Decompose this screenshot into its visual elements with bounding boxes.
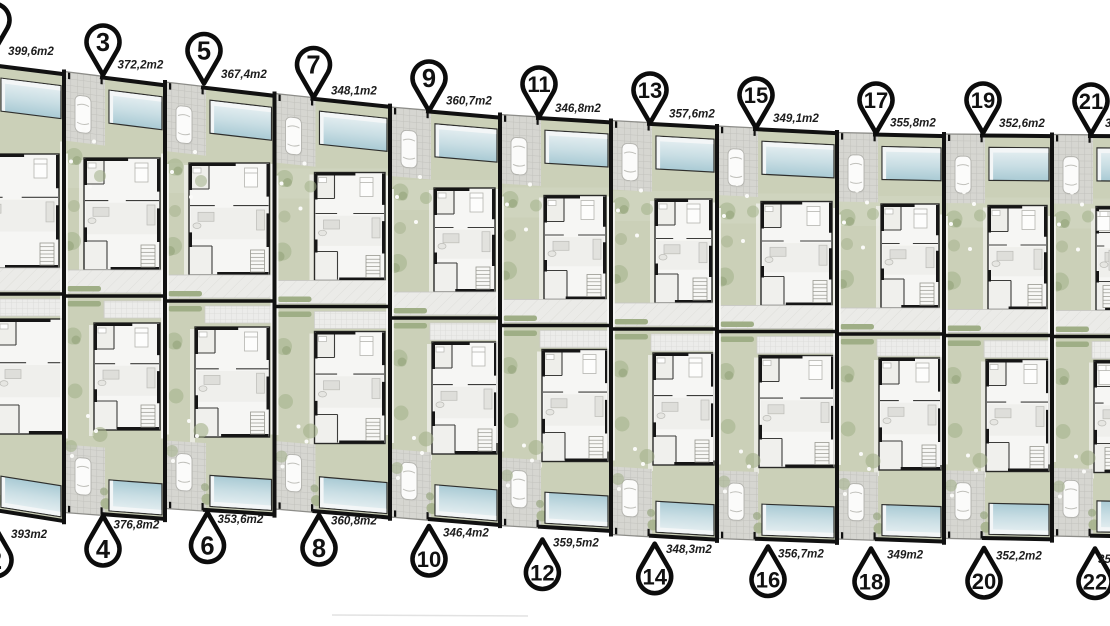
svg-text:8: 8 [312, 535, 326, 563]
svg-text:353,6m2: 353,6m2 [218, 513, 264, 526]
svg-text:17: 17 [864, 88, 888, 113]
svg-text:12: 12 [530, 560, 554, 585]
svg-text:356,7m2: 356,7m2 [778, 548, 824, 561]
svg-text:6: 6 [200, 533, 214, 561]
svg-text:5: 5 [197, 38, 211, 66]
svg-text:3: 3 [96, 29, 110, 57]
svg-text:346,8m2: 346,8m2 [555, 102, 601, 115]
svg-text:360,8m2: 360,8m2 [331, 515, 377, 528]
svg-text:22: 22 [1083, 569, 1107, 594]
svg-text:352m2: 352m2 [1105, 117, 1110, 130]
svg-text:346,4m2: 346,4m2 [443, 527, 489, 540]
svg-text:20: 20 [972, 569, 996, 594]
svg-text:21: 21 [1079, 89, 1103, 114]
svg-text:11: 11 [527, 72, 550, 97]
svg-text:13: 13 [638, 78, 662, 103]
svg-text:4: 4 [96, 536, 111, 564]
svg-text:372,2m2: 372,2m2 [118, 59, 164, 72]
svg-text:367,4m2: 367,4m2 [221, 68, 267, 81]
svg-text:7: 7 [306, 52, 320, 80]
svg-text:14: 14 [642, 565, 667, 590]
svg-text:352m2: 352m2 [1098, 553, 1110, 566]
svg-text:352,6m2: 352,6m2 [999, 117, 1045, 130]
svg-text:376,8m2: 376,8m2 [114, 519, 160, 532]
svg-text:19: 19 [971, 88, 995, 113]
svg-text:10: 10 [417, 547, 441, 572]
svg-text:2: 2 [0, 547, 2, 575]
svg-text:359,5m2: 359,5m2 [553, 537, 599, 550]
svg-text:9: 9 [422, 65, 436, 93]
svg-text:16: 16 [756, 567, 780, 592]
svg-text:355,8m2: 355,8m2 [890, 117, 936, 130]
svg-text:399,6m2: 399,6m2 [8, 45, 54, 58]
svg-text:357,6m2: 357,6m2 [669, 108, 715, 121]
svg-text:349,1m2: 349,1m2 [773, 112, 819, 125]
svg-text:393m2: 393m2 [11, 528, 48, 541]
svg-text:352,2m2: 352,2m2 [996, 550, 1042, 563]
svg-text:18: 18 [859, 569, 883, 594]
svg-text:349m2: 349m2 [887, 549, 924, 562]
svg-text:348,1m2: 348,1m2 [331, 85, 377, 98]
svg-text:360,7m2: 360,7m2 [446, 95, 492, 108]
svg-text:15: 15 [744, 83, 768, 108]
svg-text:348,3m2: 348,3m2 [666, 543, 712, 556]
